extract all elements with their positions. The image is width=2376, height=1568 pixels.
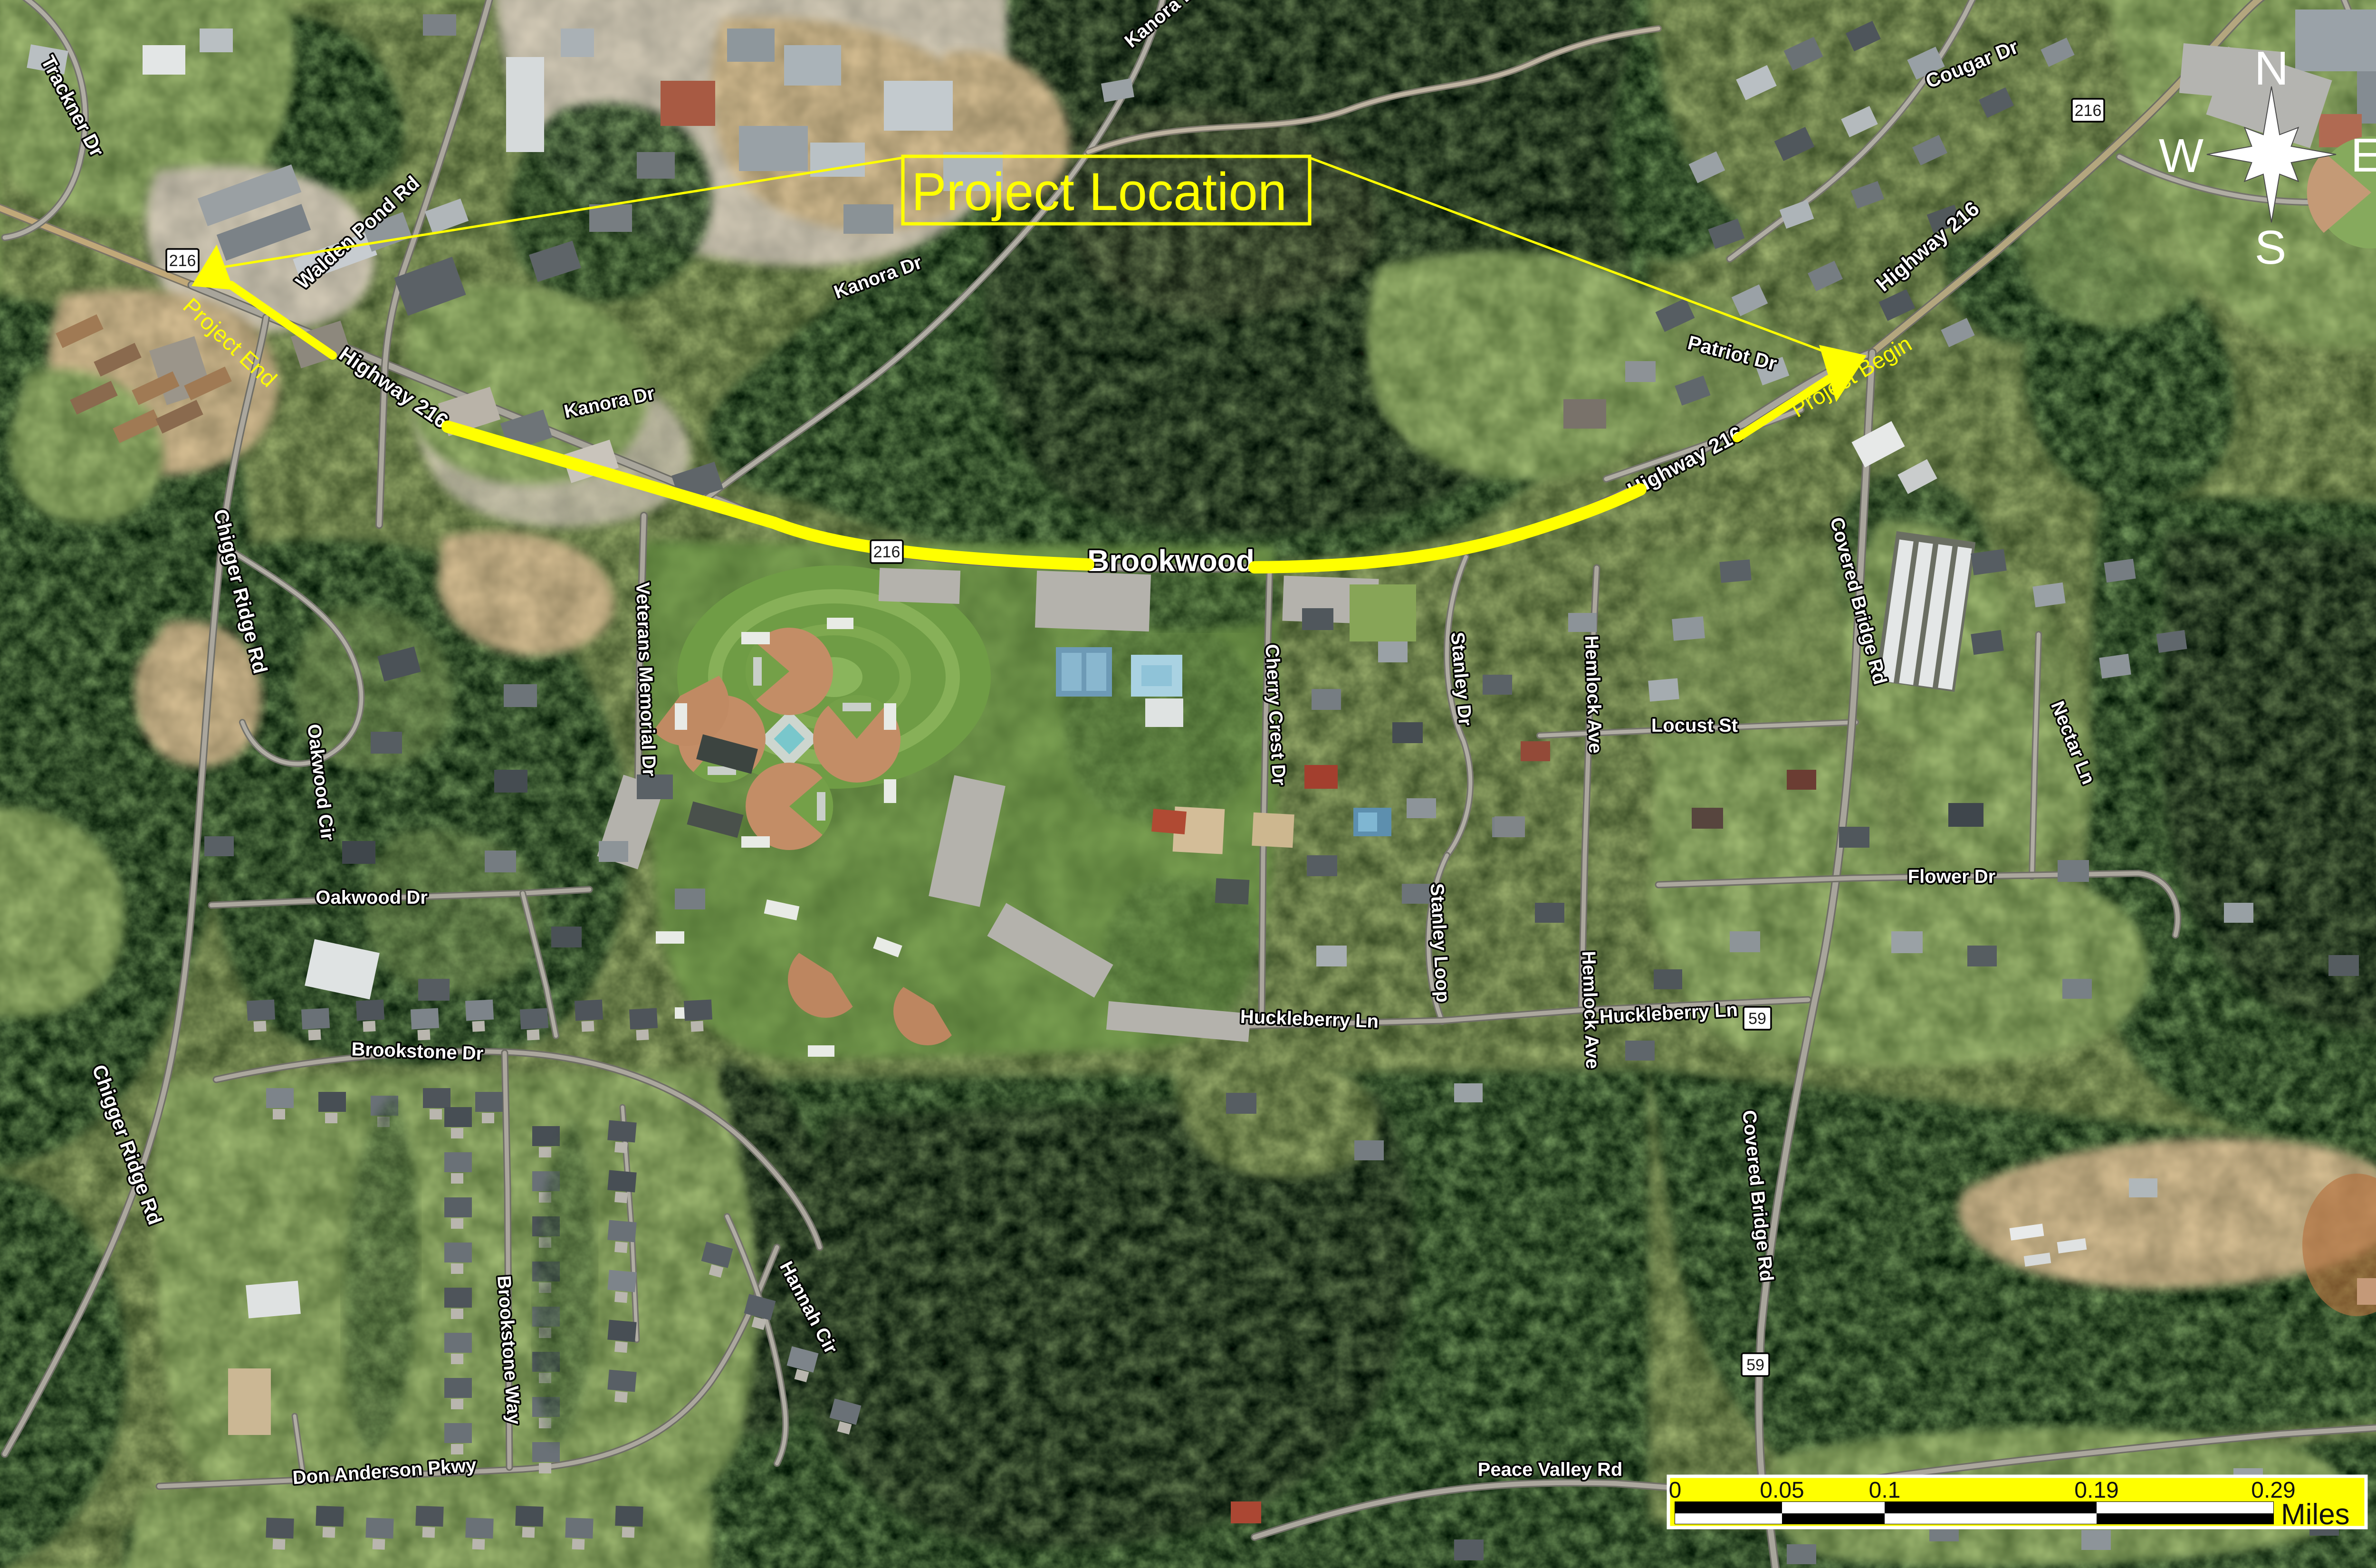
svg-text:59: 59 xyxy=(1746,1356,1764,1374)
svg-text:Flower Dr: Flower Dr xyxy=(1908,866,1995,887)
svg-text:N: N xyxy=(2254,42,2289,95)
svg-text:W: W xyxy=(2159,129,2204,182)
svg-text:59: 59 xyxy=(1748,1010,1766,1028)
svg-text:E: E xyxy=(2351,129,2376,182)
svg-text:0.05: 0.05 xyxy=(1760,1478,1804,1503)
svg-text:Brookwood: Brookwood xyxy=(1087,544,1255,578)
svg-text:0: 0 xyxy=(1669,1478,1682,1503)
svg-text:S: S xyxy=(2255,221,2287,274)
svg-text:Project Location: Project Location xyxy=(911,162,1287,221)
svg-text:Hemlock Ave: Hemlock Ave xyxy=(1581,635,1606,754)
svg-text:0.19: 0.19 xyxy=(2074,1478,2118,1503)
svg-text:Miles: Miles xyxy=(2281,1498,2350,1531)
svg-text:216: 216 xyxy=(169,252,196,270)
svg-text:216: 216 xyxy=(873,543,901,561)
svg-text:0.1: 0.1 xyxy=(1869,1478,1901,1503)
svg-text:Locust St: Locust St xyxy=(1651,715,1738,736)
svg-text:Oakwood Dr: Oakwood Dr xyxy=(316,887,428,908)
svg-text:216: 216 xyxy=(2075,102,2102,120)
svg-text:Peace Valley Rd: Peace Valley Rd xyxy=(1478,1459,1623,1480)
